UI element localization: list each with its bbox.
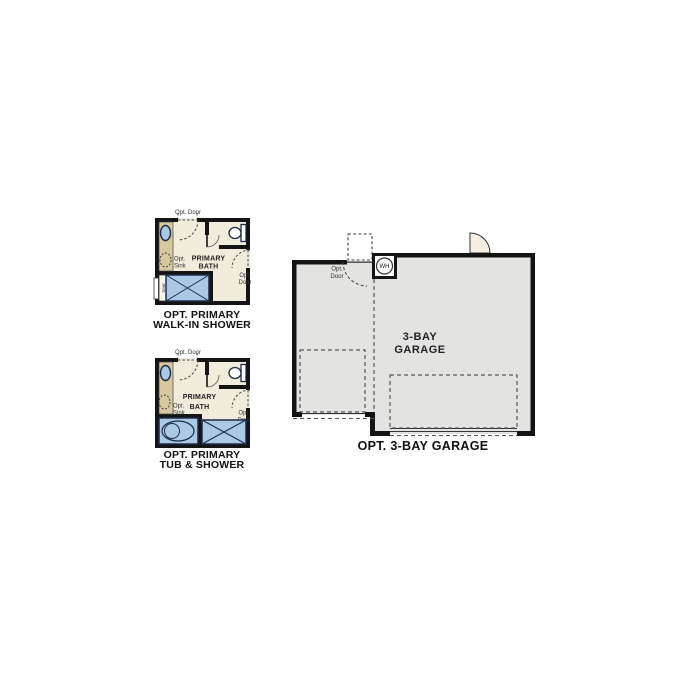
opt-door-label-1: Opt. [331, 267, 343, 273]
room-label-2: BATH [190, 404, 210, 411]
tub-shower-caption: OPT. PRIMARY TUB & SHOWER [132, 450, 272, 470]
opt-sink-label-2: Sink [174, 264, 187, 270]
sink [161, 366, 171, 381]
walk-in-shower-plan: Opt. Door Opt. Sink [148, 204, 258, 310]
entry-door-swing [470, 233, 490, 253]
opt-door-right-label-1: Opt. [239, 273, 251, 279]
room-label-1: PRIMARY [192, 256, 226, 263]
optional-door-outline [348, 234, 372, 260]
room-label-2: BATH [199, 264, 219, 271]
toilet-tank [241, 225, 246, 242]
tub-shower-plan: Opt. Door Opt. Sink PRIMARY [148, 344, 258, 452]
bathtub [159, 418, 198, 444]
water-heater-label: WH [380, 264, 390, 270]
opt-sink-label-1: Opt. [174, 257, 186, 263]
opt-door-right-label-2: Door [238, 280, 251, 286]
floorplan-options-sheet: Opt. Door Opt. Sink [0, 0, 687, 687]
shower [202, 420, 246, 444]
toilet-bowl [229, 228, 241, 239]
toilet-tank [241, 365, 246, 382]
opt-door-right-label-1: Opt. [238, 411, 250, 417]
toilet-bowl [229, 368, 241, 379]
seat-label: Seat [161, 283, 166, 293]
garage-plan: Opt. Door WH 3-BAY GARAGE [285, 222, 540, 440]
garage-caption: OPT. 3-BAY GARAGE [323, 440, 523, 453]
sink [161, 226, 171, 241]
water-heater: WH [374, 255, 396, 278]
opt-sink-label-2: Sink [173, 411, 186, 417]
garage-room-label-1: 3-BAY [403, 331, 438, 343]
walk-in-shower-caption: OPT. PRIMARY WALK-IN SHOWER [132, 310, 272, 330]
garage-room-label-2: GARAGE [394, 344, 445, 356]
shower-niche [154, 278, 159, 299]
opt-door-opening [347, 262, 374, 263]
opt-door-label-2: Door [330, 274, 343, 280]
room-label-1: PRIMARY [183, 394, 217, 401]
opt-sink-label-1: Opt. [173, 404, 185, 410]
walk-in-shower [166, 275, 209, 301]
